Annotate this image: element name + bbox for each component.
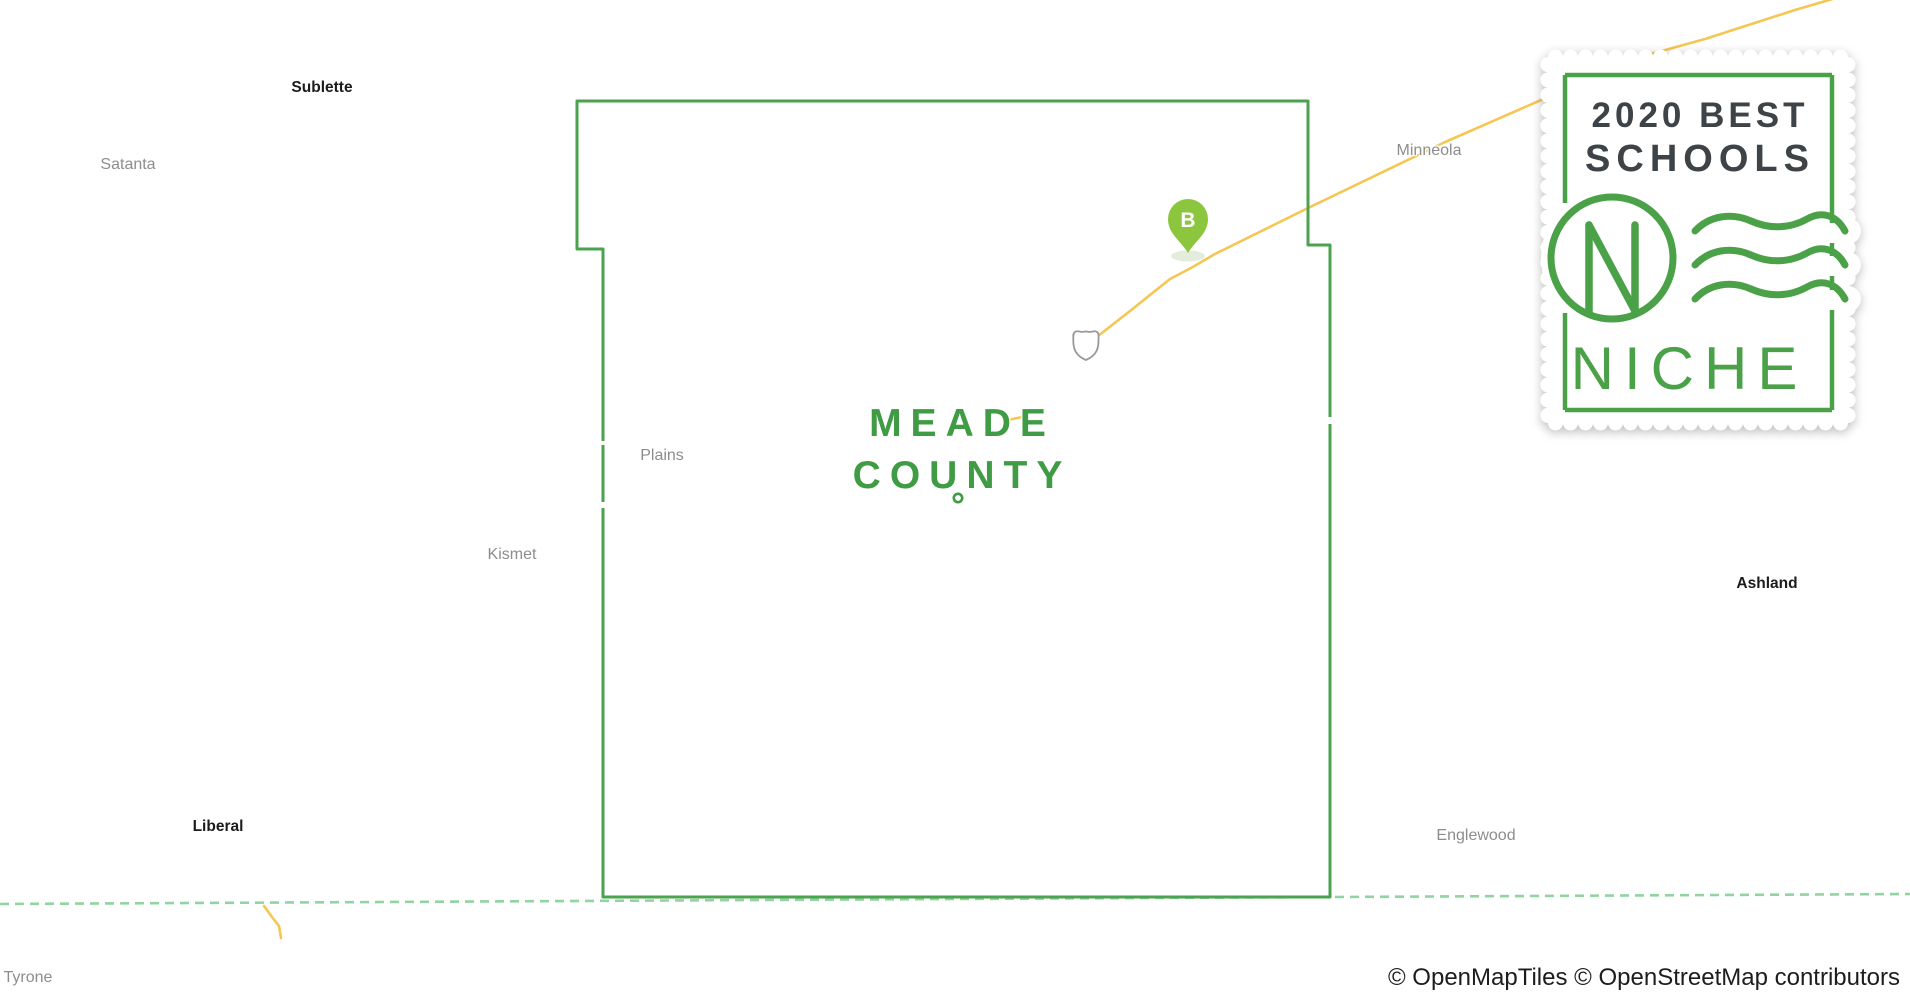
badge-title-line2: SCHOOLS	[1585, 138, 1815, 180]
road-stub-line	[264, 906, 281, 938]
marker-label: B	[1180, 209, 1195, 232]
niche-wordmark: NICHE	[1571, 335, 1808, 402]
school-marker-pin[interactable]: B	[1168, 199, 1208, 262]
town-label-kismet: Kismet	[488, 546, 537, 564]
town-label-satanta: Satanta	[100, 156, 155, 174]
highway-shield-icon	[1073, 331, 1098, 360]
town-label-tyrone: Tyrone	[4, 969, 53, 987]
town-label-ashland: Ashland	[1736, 575, 1797, 593]
niche-badge-art: 2020 BEST SCHOOLS NICHE	[1528, 45, 1908, 445]
county-name-line2: COUNTY	[853, 450, 1072, 502]
county-name-line1: MEADE	[853, 398, 1072, 450]
town-label-englewood: Englewood	[1436, 827, 1515, 845]
map-attribution[interactable]: © OpenMapTiles © OpenStreetMap contribut…	[1384, 964, 1904, 992]
badge-title-line1: 2020 BEST	[1592, 96, 1809, 135]
county-name-label: MEADE COUNTY	[853, 398, 1072, 502]
town-label-minneola: Minneola	[1397, 142, 1462, 160]
town-label-liberal: Liberal	[193, 818, 244, 836]
niche-badge: 2020 BEST SCHOOLS NICHE	[1528, 45, 1908, 445]
town-label-plains: Plains	[640, 447, 684, 465]
town-label-sublette: Sublette	[291, 79, 352, 97]
